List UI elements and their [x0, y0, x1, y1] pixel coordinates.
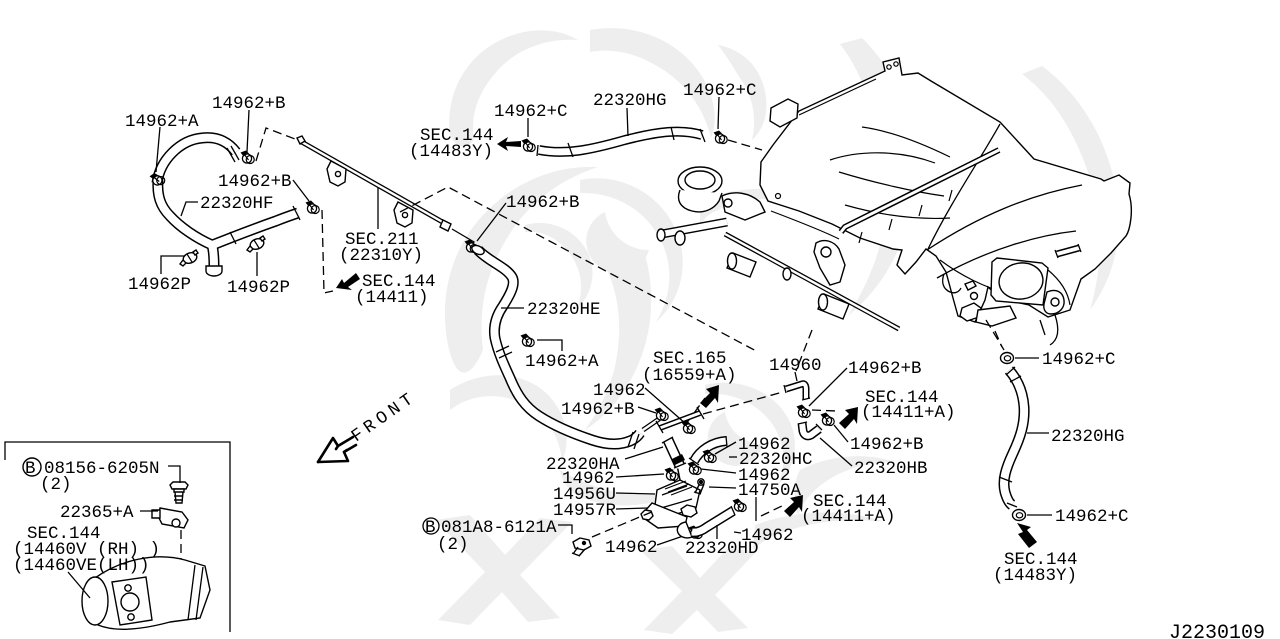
svg-text:(14483Y): (14483Y): [409, 142, 493, 162]
svg-text:(14483Y): (14483Y): [993, 566, 1077, 586]
svg-text:(14411): (14411): [355, 288, 429, 308]
svg-text:(2): (2): [40, 475, 72, 495]
svg-text:J2230109: J2230109: [1169, 622, 1265, 639]
svg-text:14960: 14960: [769, 356, 822, 376]
svg-text:14962+C: 14962+C: [1042, 350, 1116, 370]
svg-text:14962+B: 14962+B: [561, 400, 635, 420]
svg-text:22320HE: 22320HE: [527, 300, 601, 320]
svg-text:(16559+A): (16559+A): [642, 366, 737, 386]
svg-text:14962+C: 14962+C: [494, 102, 568, 122]
svg-text:14962P: 14962P: [128, 275, 191, 295]
svg-text:14962: 14962: [741, 526, 794, 546]
svg-text:(2): (2): [437, 535, 469, 555]
svg-text:14962+B: 14962+B: [848, 359, 922, 379]
svg-text:14962+B: 14962+B: [850, 435, 924, 455]
svg-text:22320HF: 22320HF: [200, 194, 274, 214]
svg-text:(14411+A): (14411+A): [801, 507, 896, 527]
svg-text:B: B: [425, 518, 436, 538]
svg-text:14962+B: 14962+B: [506, 193, 580, 213]
svg-text:14962: 14962: [593, 381, 646, 401]
svg-text:14962+C: 14962+C: [1055, 507, 1129, 527]
svg-text:(14460VE(LH)): (14460VE(LH)): [13, 556, 150, 576]
svg-text:14962+A: 14962+A: [525, 352, 599, 372]
svg-text:14957R: 14957R: [553, 501, 617, 521]
svg-text:14962+B: 14962+B: [218, 172, 292, 192]
svg-text:14962P: 14962P: [227, 278, 290, 298]
svg-text:22320HG: 22320HG: [593, 91, 667, 111]
svg-text:14962: 14962: [605, 538, 658, 558]
svg-text:14962+B: 14962+B: [212, 94, 286, 114]
svg-text:22320HG: 22320HG: [1051, 427, 1125, 447]
svg-text:22320HB: 22320HB: [854, 459, 928, 479]
svg-text:14962+A: 14962+A: [125, 112, 199, 132]
svg-text:14962+C: 14962+C: [683, 81, 757, 101]
svg-text:(22310Y): (22310Y): [339, 246, 423, 266]
svg-text:22365+A: 22365+A: [60, 503, 134, 523]
svg-text:(14411+A): (14411+A): [861, 403, 956, 423]
svg-text:B: B: [25, 459, 36, 479]
svg-text:14750A: 14750A: [738, 481, 802, 501]
